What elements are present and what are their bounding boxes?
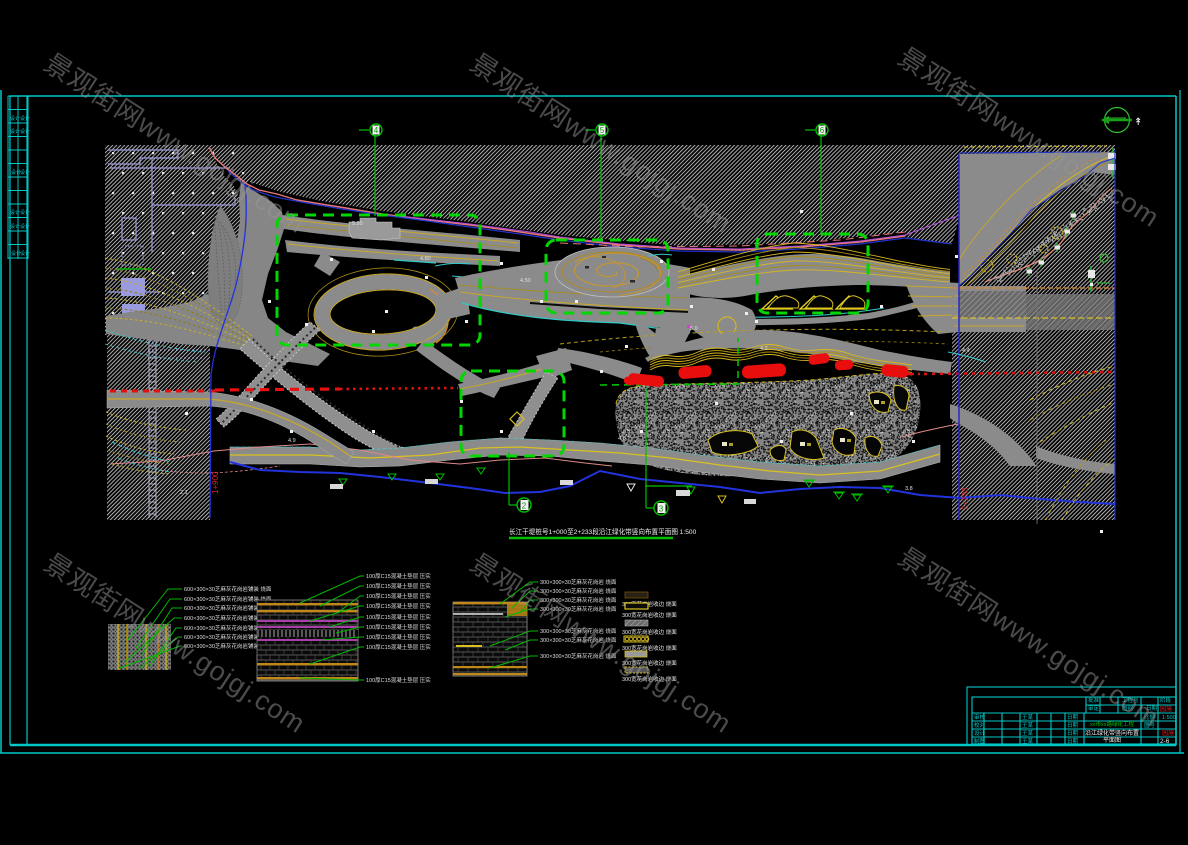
svg-text:2: 2 [522, 502, 527, 511]
svg-text:日期: 日期 [1067, 730, 1079, 737]
svg-text:4.80: 4.80 [420, 256, 431, 262]
svg-text:审核: 审核 [974, 713, 986, 721]
svg-text:100厚C15混凝土垫层 压实: 100厚C15混凝土垫层 压实 [366, 613, 431, 621]
svg-text:2+233: 2+233 [961, 487, 970, 510]
svg-text:王某: 王某 [1022, 714, 1034, 721]
svg-text:5.20: 5.20 [352, 221, 363, 227]
svg-text:设计: 设计 [20, 250, 30, 257]
svg-text:100厚C15混凝土垫层 压实: 100厚C15混凝土垫层 压实 [366, 592, 431, 600]
svg-text:设计: 设计 [20, 115, 30, 122]
svg-text:阶段: 阶段 [1160, 696, 1172, 704]
svg-text:100厚C15混凝土垫层 压实: 100厚C15混凝土垫层 压实 [366, 623, 431, 631]
svg-text:↟: ↟ [1134, 117, 1142, 128]
svg-text:5.0: 5.0 [690, 326, 698, 332]
svg-text:4.6: 4.6 [618, 436, 626, 442]
svg-text:4.9: 4.9 [288, 438, 296, 444]
svg-text:100厚C15混凝土垫层 压实: 100厚C15混凝土垫层 压实 [366, 572, 431, 580]
svg-text:1+900: 1+900 [211, 471, 220, 494]
svg-text:王某: 王某 [1022, 722, 1034, 729]
svg-text:日期: 日期 [1067, 738, 1079, 745]
svg-text:设计: 设计 [20, 223, 30, 230]
svg-text:3.8: 3.8 [905, 486, 913, 492]
svg-text:300宽花岗岩收边 烧面: 300宽花岗岩收边 烧面 [622, 611, 677, 619]
svg-text:6: 6 [820, 126, 825, 135]
svg-text:设计: 设计 [20, 169, 30, 176]
svg-text:100厚C15混凝土垫层 压实: 100厚C15混凝土垫层 压实 [366, 602, 431, 610]
svg-text:100厚C15混凝土垫层 压实: 100厚C15混凝土垫层 压实 [366, 643, 431, 651]
svg-text:制图: 制图 [974, 737, 986, 745]
svg-text:2.1: 2.1 [180, 490, 188, 496]
svg-text:日期: 日期 [1067, 714, 1079, 721]
svg-text:园施: 园施 [1162, 729, 1174, 737]
svg-text:设计: 设计 [10, 128, 20, 135]
svg-text:600×300×30芝麻灰花岗岩铺装 烧面: 600×300×30芝麻灰花岗岩铺装 烧面 [184, 585, 272, 593]
svg-text:2-6: 2-6 [1160, 738, 1170, 745]
svg-text:校对: 校对 [974, 721, 986, 729]
svg-text:设计: 设计 [10, 115, 20, 122]
svg-text:100厚C15混凝土垫层 压实: 100厚C15混凝土垫层 压实 [366, 676, 431, 684]
svg-text:4.2: 4.2 [760, 346, 768, 352]
svg-text:沿江绿化带竖向布置: 沿江绿化带竖向布置 [1085, 729, 1139, 737]
svg-text:日期: 日期 [1067, 722, 1079, 729]
svg-text:设计: 设计 [20, 209, 30, 216]
svg-text:100厚C15混凝土垫层 压实: 100厚C15混凝土垫层 压实 [366, 633, 431, 641]
svg-text:100厚C15混凝土垫层 压实: 100厚C15混凝土垫层 压实 [366, 582, 431, 590]
svg-text:300×300×30芝麻灰花岗岩 烧面: 300×300×30芝麻灰花岗岩 烧面 [540, 578, 617, 586]
svg-text:长江干堤桩号1+000至2+233段沿江绿化带竖向布置平面图: 长江干堤桩号1+000至2+233段沿江绿化带竖向布置平面图 1:500 [509, 527, 697, 536]
svg-text:审定: 审定 [1088, 704, 1100, 712]
svg-text:4: 4 [374, 126, 379, 135]
svg-text:xx市xx路绿化工程: xx市xx路绿化工程 [1090, 720, 1135, 728]
svg-text:平面图: 平面图 [1103, 737, 1121, 744]
svg-text:设计: 设计 [10, 209, 20, 216]
svg-text:300宽花岗岩收边 烧面: 300宽花岗岩收边 烧面 [622, 628, 677, 636]
svg-text:王某: 王某 [1022, 730, 1034, 737]
svg-text:4.50: 4.50 [520, 278, 531, 284]
svg-text:1:500: 1:500 [1162, 715, 1176, 721]
svg-text:设计: 设计 [20, 128, 30, 135]
svg-text:王某: 王某 [1022, 738, 1034, 745]
svg-text:3: 3 [659, 505, 664, 514]
svg-text:设计: 设计 [10, 223, 20, 230]
svg-text:4.4: 4.4 [962, 348, 970, 354]
svg-text:设计: 设计 [974, 729, 986, 737]
